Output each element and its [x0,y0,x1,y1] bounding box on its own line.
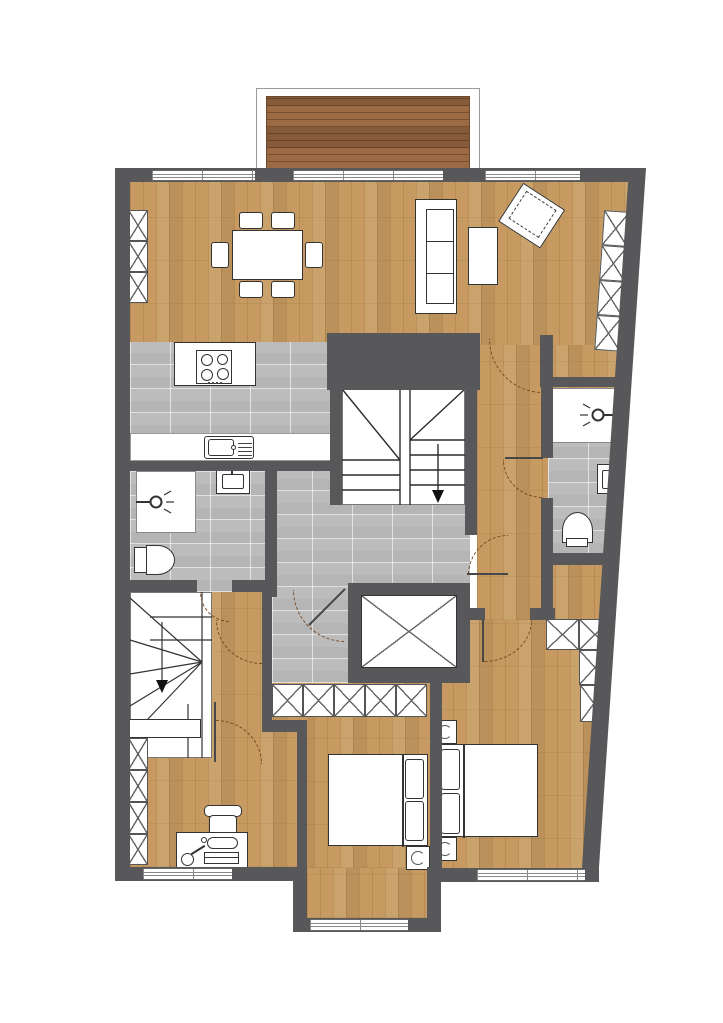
pillow [405,801,424,841]
desk-lamp-icon [181,853,194,866]
window [477,869,585,881]
door-arc [468,535,508,575]
dining-chair [271,281,295,298]
shower-head-icon [574,402,618,428]
sofa [415,199,457,314]
pillow [441,793,460,834]
wall-elevator-west [348,595,361,675]
desk-lamp-head [201,837,207,843]
wardrobe-x-icon [128,770,148,802]
drainboard [238,440,252,456]
floor-bedroom-south-bay [307,868,427,918]
window [310,919,408,931]
double-bed [328,754,428,846]
wall-stair-west [330,378,342,505]
balcony-deck [266,96,470,170]
wall-elevator-east [457,595,470,675]
wall-bedrooms-divider [430,683,442,868]
exterior-wall-left [115,168,130,881]
wardrobe-x-icon [334,684,365,717]
table-lamp-icon [411,851,425,865]
wardrobe-x-icon [303,684,334,717]
window [152,170,255,181]
window [293,170,443,181]
dining-chair [239,281,263,298]
wall-stair-east [465,378,477,535]
wall-bedroom-east-north [465,608,485,620]
wall-office-bedroom [297,732,307,867]
monitor [207,837,238,849]
wall-bathroom-east-north [543,377,619,387]
door-leaf [505,457,543,459]
dining-chair [211,242,229,268]
wall-bathroom-east-west [541,387,553,458]
wall-kitchen-south [130,461,332,471]
stairs-down-arrow-icon [432,490,444,503]
wardrobe-x-icon [128,241,148,272]
keyboard [204,852,239,864]
wardrobe-x-icon [128,210,148,241]
window [485,170,580,181]
dining-table [232,230,303,280]
wardrobe-x-icon [365,684,396,717]
door-leaf [214,702,216,762]
wardrobe-x-icon [128,802,148,834]
shower-head-icon [136,489,180,515]
wardrobe-x-icon [546,619,579,650]
burner [217,354,228,365]
dresser [128,719,201,738]
toilet-base [566,538,588,547]
elevator-x-icon [361,595,457,668]
dining-chair [271,212,295,229]
sofa-cushions [426,209,454,304]
pillow [441,749,460,790]
coffee-table [468,227,498,285]
door-leaf [467,573,508,575]
wardrobe-x-icon [128,834,148,865]
floor-plan [0,0,723,1023]
stairs-down-arrow-icon [156,680,168,693]
pillow [405,759,424,799]
wall-bathroom-west-south [232,580,277,592]
burner [201,369,213,381]
window [143,868,232,880]
desk [176,832,248,868]
wardrobe-x-icon [128,272,148,303]
exterior-mask-bottom-right [441,882,611,1023]
wall-entry-east [262,592,272,732]
double-bed [437,744,538,837]
wall-bedroom-east-north [530,608,555,620]
wall-elevator-north [348,583,470,595]
wardrobe-x-icon [272,684,303,717]
wall-entry-south [262,720,307,732]
burner [217,368,229,380]
washbasin-icon [216,467,250,494]
wall-elevator-south [348,668,470,683]
wardrobe-x-icon [396,684,427,717]
exterior-mask-bottom-left [0,881,293,1023]
wall-living-south [327,333,480,390]
wardrobe-x-icon [128,738,148,770]
sink-icon [204,436,254,459]
dining-chair [239,212,263,229]
door-leaf [482,620,484,662]
wall-bathroom-west-south [115,580,197,592]
wall-bathroom-west-east [265,461,277,597]
dining-chair [305,242,323,268]
cooktop-icon [196,350,232,384]
cooktop-knobs [208,382,222,384]
wall-bathroom-east-south [548,553,610,565]
burner [201,354,213,366]
staircase-main-treads [342,389,465,505]
